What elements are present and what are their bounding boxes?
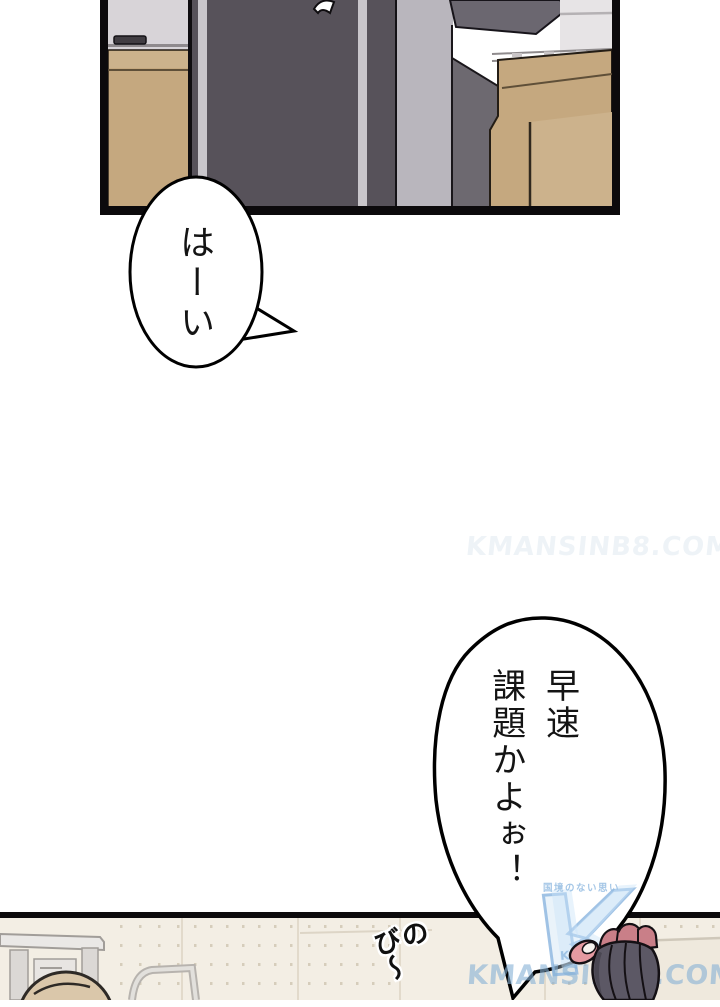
watermark-site-faint: KMANSINB8.COM bbox=[464, 532, 720, 562]
cabinet-left-top bbox=[109, 51, 188, 68]
rail-hook bbox=[512, 53, 522, 57]
wall-right bbox=[560, 0, 612, 54]
machine-side bbox=[397, 0, 453, 207]
marker-object bbox=[114, 36, 146, 44]
pillar-stripe-2 bbox=[358, 0, 367, 207]
wall-rail-line bbox=[560, 13, 612, 14]
cabinet-right-face bbox=[530, 112, 612, 207]
speech-text-reply: はーい bbox=[176, 224, 211, 344]
speech-line: 課題かよぉ！ bbox=[478, 668, 532, 918]
overhang bbox=[450, 0, 566, 34]
fist-art bbox=[560, 915, 670, 1000]
speech-bubble-reply bbox=[120, 168, 310, 378]
panel-border-right bbox=[612, 0, 620, 215]
panel-border-left bbox=[100, 0, 108, 215]
watermark-slogan: 国境のない思い bbox=[543, 880, 620, 894]
